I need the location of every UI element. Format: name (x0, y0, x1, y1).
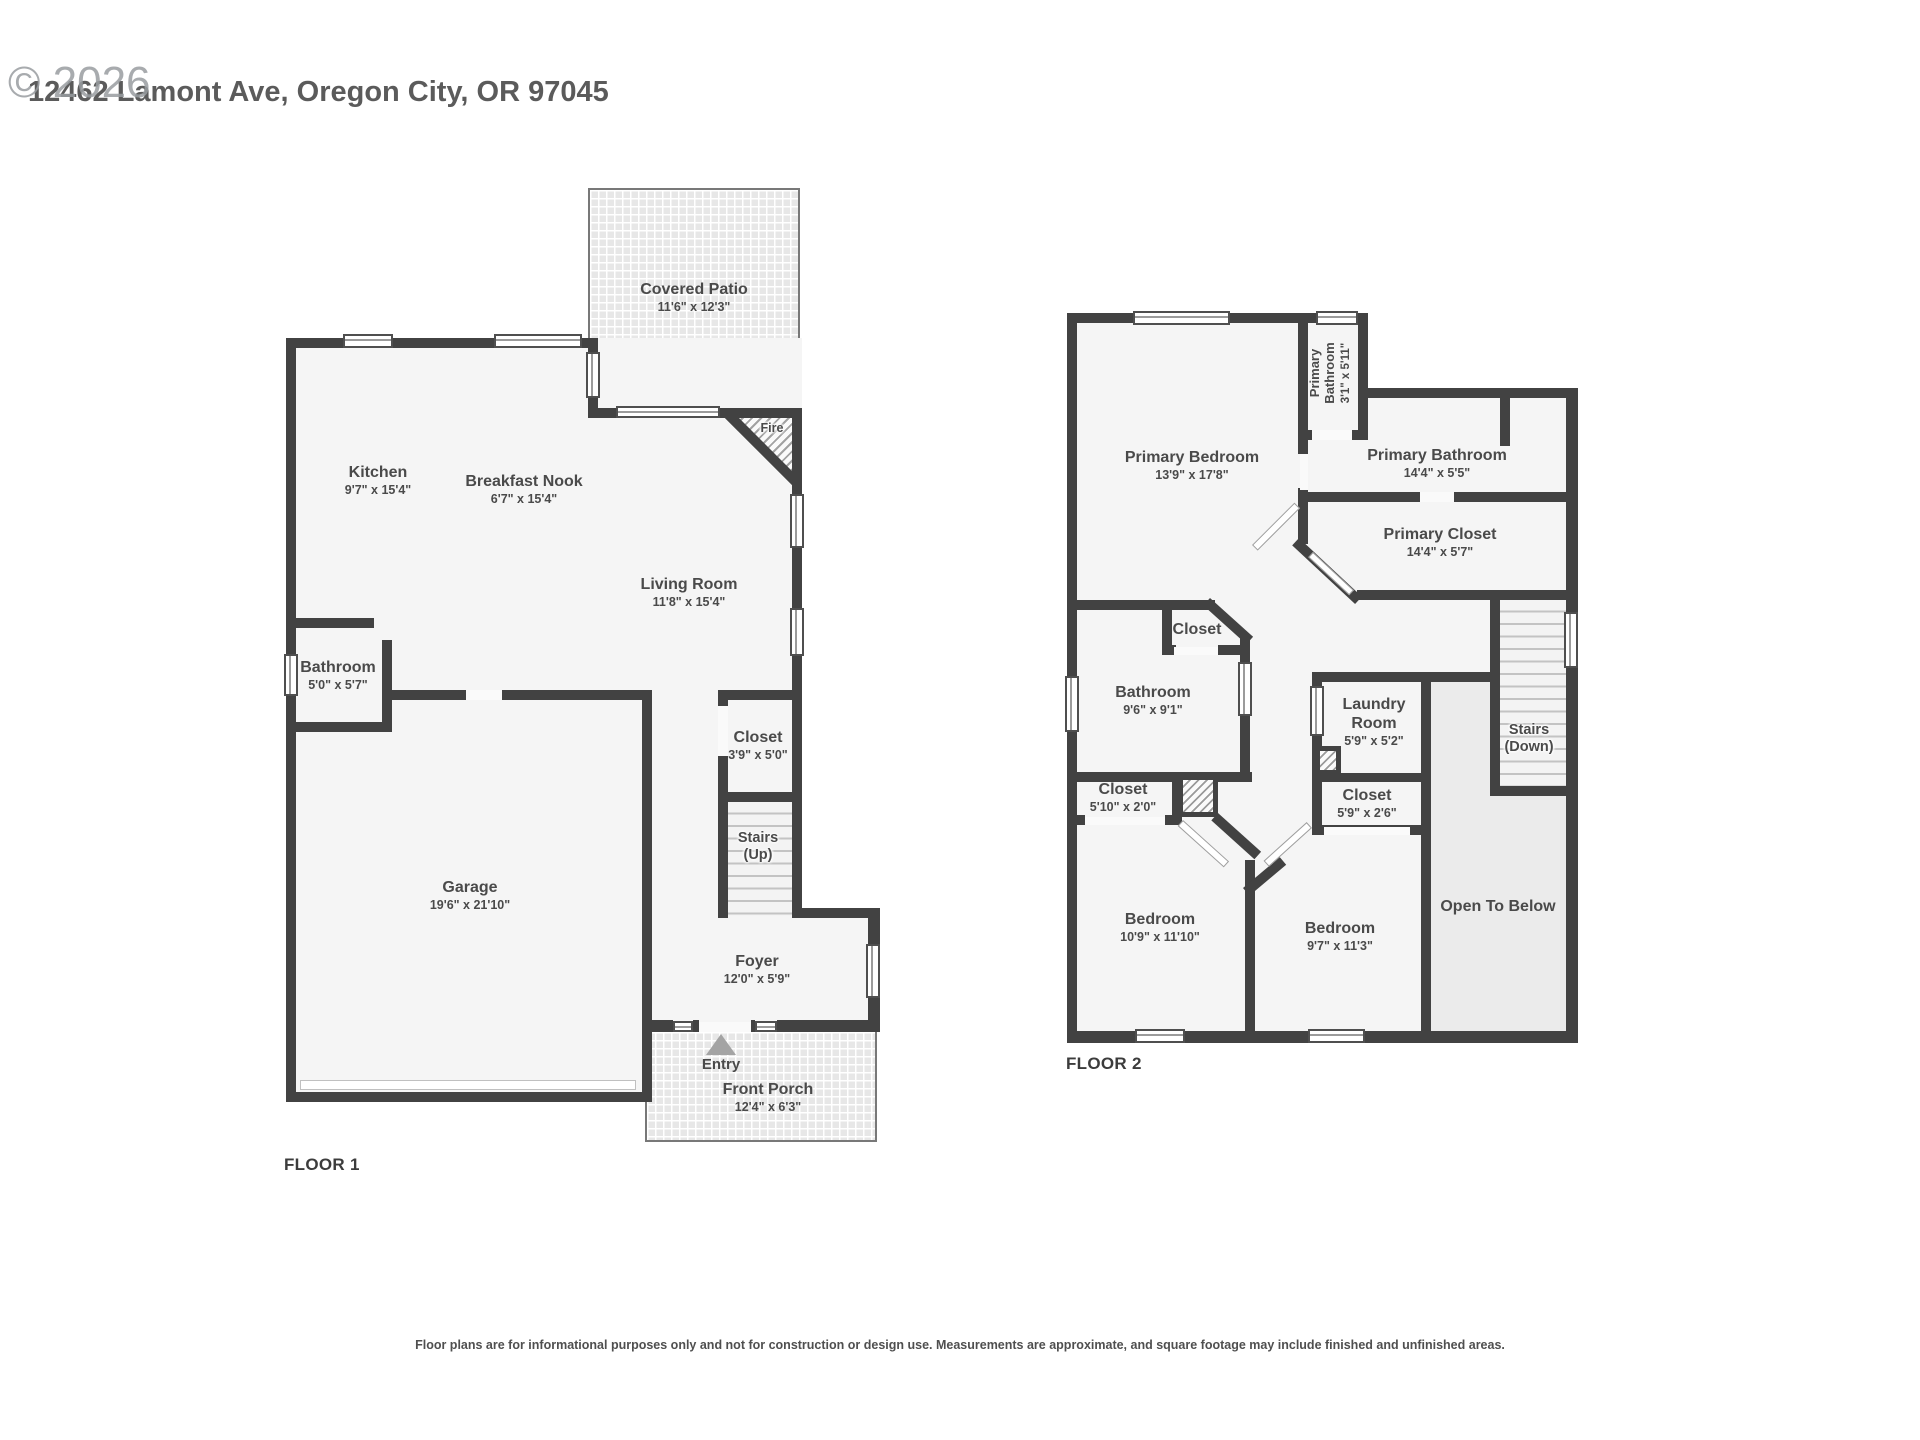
wall (1312, 672, 1498, 682)
patio-door (586, 352, 600, 398)
door-opening (1174, 647, 1218, 655)
wall (642, 690, 652, 1102)
room-label-primary-bathroom: Primary Bathroom 14'4" x 5'5" (1347, 446, 1527, 483)
window (790, 608, 804, 656)
wall (718, 690, 728, 706)
window (1308, 1029, 1365, 1043)
wall (718, 792, 802, 802)
room-label-bedroom-right: Bedroom 9'7" x 11'3" (1250, 919, 1430, 956)
sidelite-window (755, 1021, 777, 1032)
sidelite-window (673, 1021, 693, 1032)
floor2-label: FLOOR 2 (1066, 1054, 1142, 1074)
room-label-stairs-up: Stairs (Up) (708, 830, 808, 865)
wall (718, 690, 802, 700)
window (790, 494, 804, 548)
wall (645, 1020, 673, 1032)
room-label-garage: Garage 19'6" x 21'10" (380, 878, 560, 915)
wall (1352, 430, 1368, 440)
entry-arrow-icon (706, 1034, 736, 1055)
wall (1357, 590, 1578, 600)
wall (286, 1092, 652, 1102)
wall (502, 690, 652, 700)
room-label-primary-closet: Primary Closet 14'4" x 5'7" (1350, 525, 1530, 562)
front-door-opening (699, 1022, 751, 1032)
room-label-closet-f1: Closet 3'9" x 5'0" (708, 728, 808, 765)
wall (286, 722, 392, 732)
wall (286, 618, 374, 628)
room-label-front-porch: Front Porch 12'4" x 6'3" (678, 1080, 858, 1117)
wall (792, 418, 802, 700)
door-opening (1085, 817, 1165, 825)
wall (792, 908, 880, 918)
window (1316, 311, 1358, 325)
window (1135, 1029, 1185, 1043)
room-label-closet-left: Closet 5'10" x 2'0" (1073, 780, 1173, 817)
sliding-door (616, 406, 720, 418)
door-opening (466, 690, 502, 700)
door-opening (1310, 686, 1324, 736)
garage-door-line (300, 1080, 636, 1090)
wall (588, 408, 618, 418)
room-label-closet-hall: Closet (1147, 620, 1247, 639)
wall (777, 1020, 879, 1032)
door-opening (1312, 430, 1352, 440)
disclaimer-text: Floor plans are for informational purpos… (0, 1338, 1920, 1352)
window (1133, 311, 1230, 325)
wall (1490, 786, 1578, 796)
room-label-closet-right: Closet 5'9" x 2'6" (1317, 786, 1417, 823)
window (866, 944, 880, 998)
room-label-bathroom-f2: Bathroom 9'6" x 9'1" (1063, 683, 1243, 720)
wall (718, 408, 802, 418)
room-label-fire: Fire (742, 421, 802, 436)
wall (1500, 388, 1510, 446)
wall (1298, 488, 1308, 544)
room-label-living-room: Living Room 11'8" x 15'4" (599, 575, 779, 612)
wall (1298, 440, 1308, 454)
room-label-foyer: Foyer 12'0" x 5'9" (667, 952, 847, 989)
room-label-covered-patio: Covered Patio 11'6" x 12'3" (604, 280, 784, 317)
room-label-primary-bedroom: Primary Bedroom 13'9" x 17'8" (1102, 448, 1282, 485)
wall (1358, 388, 1578, 398)
floor-plan-page: 12462 Lamont Ave, Oregon City, OR 97045 … (0, 0, 1920, 1440)
room-label-primary-bathroom-small: Primary Bathroom 3'1" x 5'11" (1308, 325, 1354, 421)
floor1-label: FLOOR 1 (284, 1155, 360, 1175)
door-opening (1420, 492, 1454, 502)
wall (1298, 430, 1312, 440)
stairs-down-treads (1500, 600, 1566, 788)
room-label-open-to-below: Open To Below (1408, 897, 1588, 916)
wall (1421, 672, 1431, 1033)
room-label-laundry: Laundry Room 5'9" x 5'2" (1329, 695, 1419, 751)
room-label-breakfast-nook: Breakfast Nook 6'7" x 15'4" (434, 472, 614, 509)
copyright-watermark: © 2026 (8, 58, 151, 108)
wall (1358, 313, 1368, 440)
wall (1067, 600, 1215, 610)
wall (286, 338, 296, 1102)
room-label-bedroom-left: Bedroom 10'9" x 11'10" (1070, 910, 1250, 947)
window (1564, 612, 1578, 668)
room-label-entry: Entry (676, 1056, 766, 1074)
room-label-bathroom-f1: Bathroom 5'0" x 5'7" (248, 658, 428, 695)
door-opening (1300, 454, 1308, 490)
window (494, 334, 582, 348)
chase-icon (1178, 775, 1218, 817)
window (343, 334, 393, 348)
door-opening (1324, 827, 1410, 835)
room-label-stairs-down: Stairs (Down) (1479, 722, 1579, 757)
wall (1566, 388, 1578, 1043)
wall (1490, 598, 1500, 794)
